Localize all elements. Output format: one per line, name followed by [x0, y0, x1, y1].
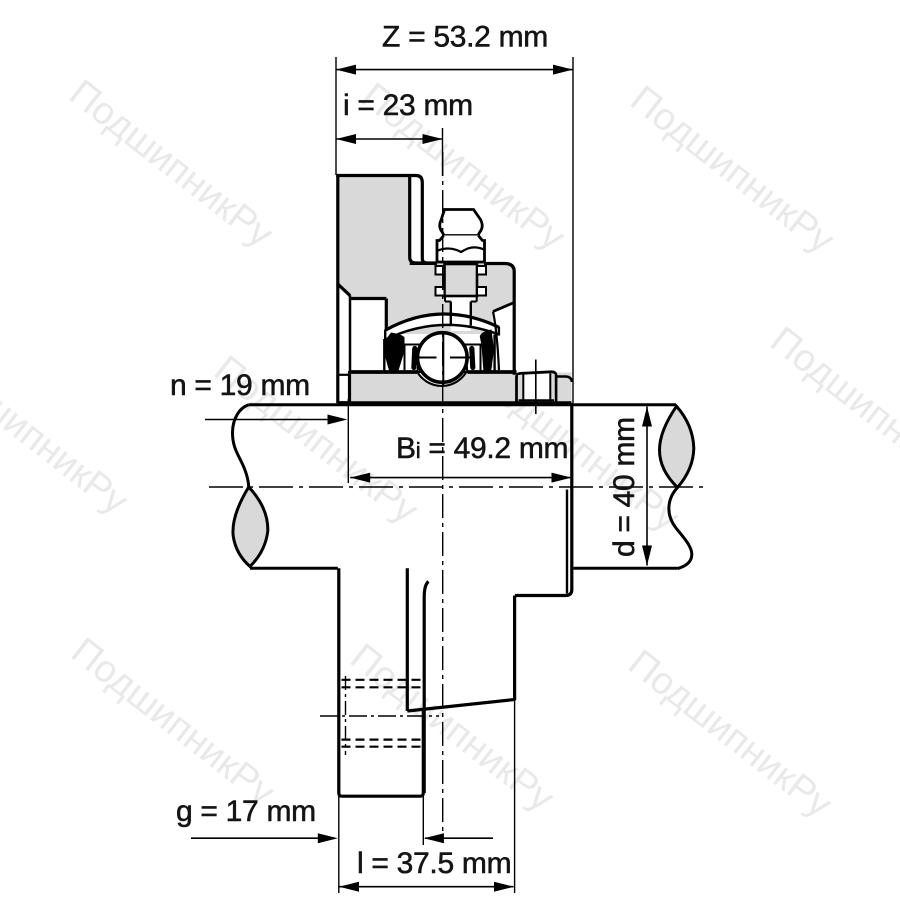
- svg-text:Bi = 49.2 mm: Bi = 49.2 mm: [396, 432, 568, 465]
- svg-text:d = 40 mm: d = 40 mm: [608, 417, 641, 557]
- svg-text:g = 17 mm: g = 17 mm: [176, 795, 316, 828]
- svg-text:Z = 53.2 mm: Z = 53.2 mm: [382, 21, 548, 54]
- svg-text:l = 37.5 mm: l = 37.5 mm: [357, 847, 511, 880]
- svg-text:i = 23 mm: i = 23 mm: [343, 89, 473, 122]
- svg-text:n = 19 mm: n = 19 mm: [170, 369, 310, 402]
